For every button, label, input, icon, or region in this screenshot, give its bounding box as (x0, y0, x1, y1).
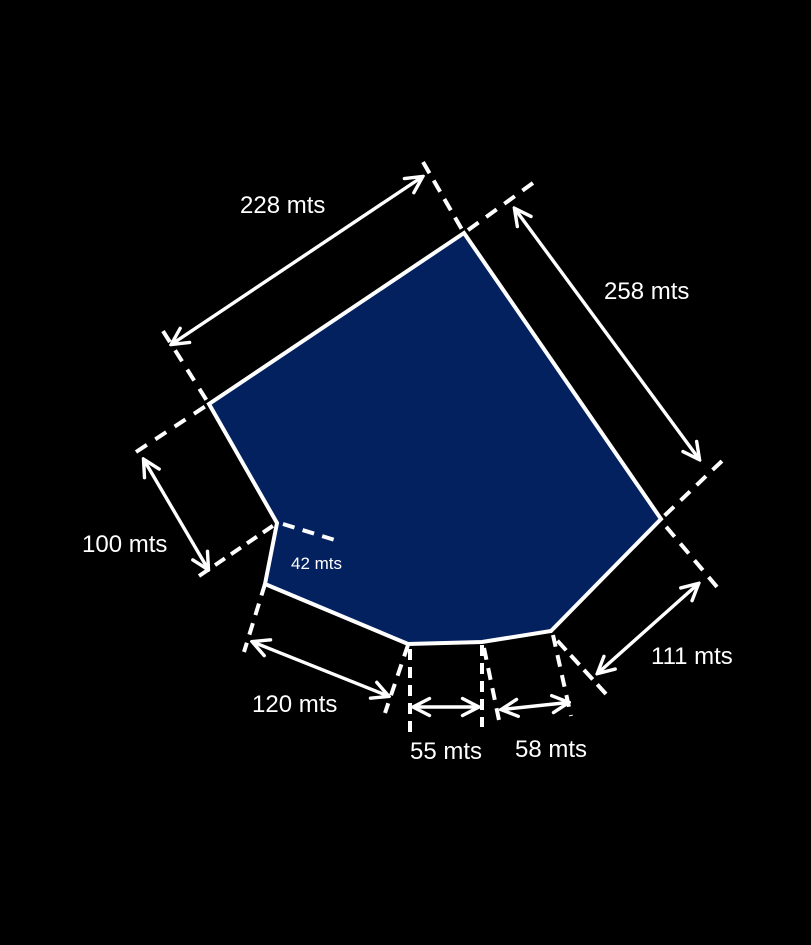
svg-text:228 mts: 228 mts (240, 192, 325, 219)
svg-text:58 mts: 58 mts (515, 736, 587, 763)
svg-text:100 mts: 100 mts (82, 531, 167, 558)
svg-text:55 mts: 55 mts (410, 738, 482, 765)
svg-text:120 mts: 120 mts (252, 691, 337, 718)
svg-text:111 mts: 111 mts (651, 643, 733, 670)
svg-text:42 mts: 42 mts (291, 554, 342, 573)
svg-text:258 mts: 258 mts (604, 278, 689, 305)
